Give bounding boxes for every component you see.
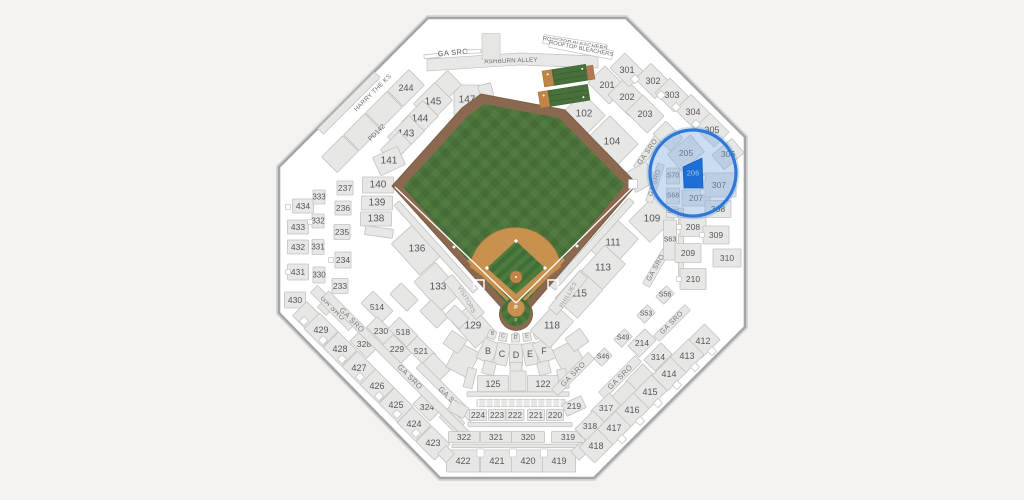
svg-text:413: 413 bbox=[679, 351, 694, 361]
svg-text:236: 236 bbox=[336, 203, 350, 213]
svg-text:314: 314 bbox=[651, 352, 665, 362]
svg-text:424: 424 bbox=[406, 419, 421, 429]
svg-text:418: 418 bbox=[588, 441, 603, 451]
svg-text:224: 224 bbox=[471, 410, 485, 420]
svg-text:331: 331 bbox=[311, 243, 325, 252]
svg-text:229: 229 bbox=[390, 344, 404, 354]
svg-text:133: 133 bbox=[430, 282, 447, 293]
svg-text:432: 432 bbox=[291, 242, 305, 252]
svg-text:433: 433 bbox=[291, 222, 305, 232]
svg-text:230: 230 bbox=[374, 326, 388, 336]
svg-text:309: 309 bbox=[709, 230, 723, 240]
svg-text:518: 518 bbox=[396, 327, 410, 337]
svg-text:330: 330 bbox=[312, 271, 326, 280]
svg-text:125: 125 bbox=[485, 379, 500, 389]
svg-text:428: 428 bbox=[332, 344, 347, 354]
svg-text:415: 415 bbox=[642, 387, 657, 397]
svg-text:S46: S46 bbox=[597, 354, 610, 361]
svg-text:208: 208 bbox=[686, 222, 700, 232]
svg-text:422: 422 bbox=[455, 456, 470, 466]
svg-text:416: 416 bbox=[624, 405, 639, 415]
svg-text:426: 426 bbox=[369, 381, 384, 391]
svg-text:S53: S53 bbox=[640, 311, 653, 318]
svg-text:333: 333 bbox=[312, 193, 326, 202]
svg-text:S63: S63 bbox=[664, 237, 677, 244]
svg-text:427: 427 bbox=[351, 363, 366, 373]
svg-text:319: 319 bbox=[561, 432, 575, 442]
svg-text:102: 102 bbox=[576, 109, 593, 120]
svg-text:332: 332 bbox=[311, 217, 325, 226]
svg-text:202: 202 bbox=[619, 92, 634, 102]
svg-text:304: 304 bbox=[685, 107, 700, 117]
svg-text:429: 429 bbox=[313, 325, 328, 335]
svg-text:203: 203 bbox=[637, 109, 652, 119]
svg-text:434: 434 bbox=[296, 201, 310, 211]
svg-text:223: 223 bbox=[490, 410, 504, 420]
svg-text:E: E bbox=[525, 334, 529, 340]
svg-text:122: 122 bbox=[535, 379, 550, 389]
svg-text:425: 425 bbox=[388, 400, 403, 410]
svg-text:104: 104 bbox=[604, 137, 621, 148]
svg-text:414: 414 bbox=[661, 369, 676, 379]
svg-text:219: 219 bbox=[567, 401, 581, 411]
svg-text:140: 140 bbox=[370, 180, 387, 191]
svg-text:417: 417 bbox=[606, 423, 621, 433]
svg-text:P: P bbox=[514, 333, 519, 340]
svg-text:S49: S49 bbox=[617, 335, 630, 342]
svg-text:321: 321 bbox=[489, 432, 503, 442]
svg-text:310: 310 bbox=[720, 253, 734, 263]
svg-text:233: 233 bbox=[333, 281, 347, 291]
svg-text:113: 113 bbox=[595, 263, 611, 274]
svg-text:302: 302 bbox=[645, 76, 660, 86]
svg-text:421: 421 bbox=[489, 456, 504, 466]
svg-text:214: 214 bbox=[635, 338, 649, 348]
svg-text:129: 129 bbox=[465, 321, 482, 332]
svg-text:220: 220 bbox=[548, 410, 562, 420]
svg-text:210: 210 bbox=[686, 274, 700, 284]
svg-text:318: 318 bbox=[583, 421, 597, 431]
svg-text:431: 431 bbox=[291, 267, 305, 277]
svg-text:244: 244 bbox=[398, 83, 413, 93]
svg-text:138: 138 bbox=[368, 214, 385, 225]
svg-text:420: 420 bbox=[520, 456, 535, 466]
svg-text:221: 221 bbox=[529, 410, 543, 420]
svg-text:514: 514 bbox=[370, 302, 384, 312]
svg-text:301: 301 bbox=[619, 65, 634, 75]
svg-text:111: 111 bbox=[605, 238, 621, 249]
svg-text:E: E bbox=[527, 349, 533, 359]
svg-text:F: F bbox=[541, 346, 547, 356]
svg-text:430: 430 bbox=[288, 295, 302, 305]
svg-text:P: P bbox=[514, 318, 517, 323]
svg-text:412: 412 bbox=[695, 336, 710, 346]
svg-text:C: C bbox=[499, 349, 506, 359]
svg-text:521: 521 bbox=[414, 346, 428, 356]
svg-text:419: 419 bbox=[551, 456, 566, 466]
svg-text:201: 201 bbox=[599, 80, 614, 90]
svg-text:320: 320 bbox=[521, 432, 535, 442]
svg-text:109: 109 bbox=[644, 214, 661, 225]
svg-text:234: 234 bbox=[336, 255, 350, 265]
svg-text:209: 209 bbox=[681, 248, 695, 258]
svg-text:237: 237 bbox=[338, 183, 352, 193]
svg-text:139: 139 bbox=[369, 198, 386, 209]
svg-text:322: 322 bbox=[457, 432, 471, 442]
svg-text:423: 423 bbox=[425, 438, 440, 448]
svg-text:B: B bbox=[491, 331, 495, 337]
svg-text:136: 136 bbox=[409, 244, 426, 255]
svg-text:317: 317 bbox=[599, 403, 613, 413]
svg-text:206: 206 bbox=[687, 169, 700, 178]
svg-text:141: 141 bbox=[381, 156, 398, 167]
svg-text:303: 303 bbox=[664, 90, 679, 100]
svg-text:C: C bbox=[501, 334, 505, 340]
svg-text:D: D bbox=[513, 350, 520, 360]
svg-text:235: 235 bbox=[335, 227, 349, 237]
svg-text:P: P bbox=[514, 305, 518, 311]
svg-text:S56: S56 bbox=[659, 292, 672, 299]
svg-text:222: 222 bbox=[508, 410, 522, 420]
svg-text:118: 118 bbox=[544, 321, 560, 332]
svg-text:B: B bbox=[485, 346, 491, 356]
